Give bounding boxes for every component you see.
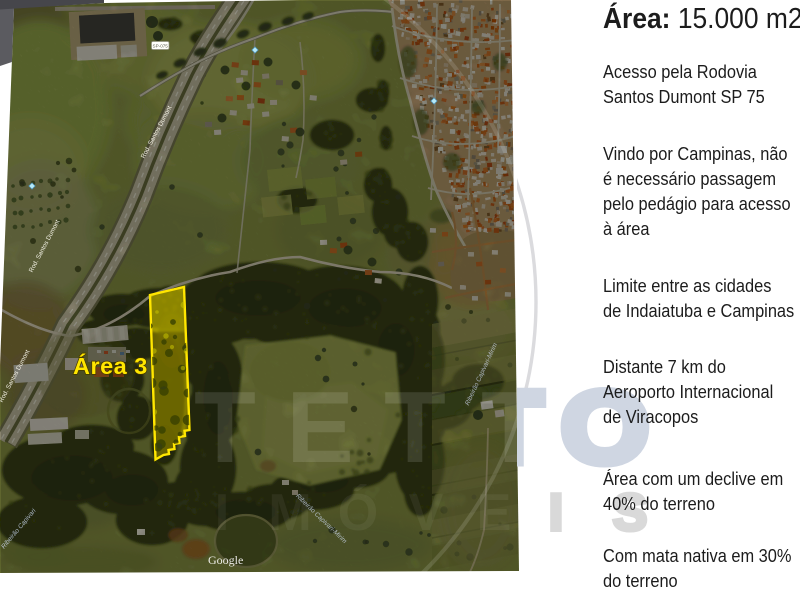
- svg-text:M: M: [268, 484, 311, 542]
- svg-text:V: V: [409, 484, 444, 542]
- svg-text:T: T: [384, 372, 446, 484]
- svg-text:E: E: [477, 484, 512, 542]
- svg-text:Ó: Ó: [338, 484, 378, 542]
- svg-text:I: I: [215, 484, 229, 542]
- svg-text:E: E: [286, 372, 353, 484]
- svg-text:T: T: [194, 372, 256, 484]
- svg-text:I: I: [549, 484, 563, 542]
